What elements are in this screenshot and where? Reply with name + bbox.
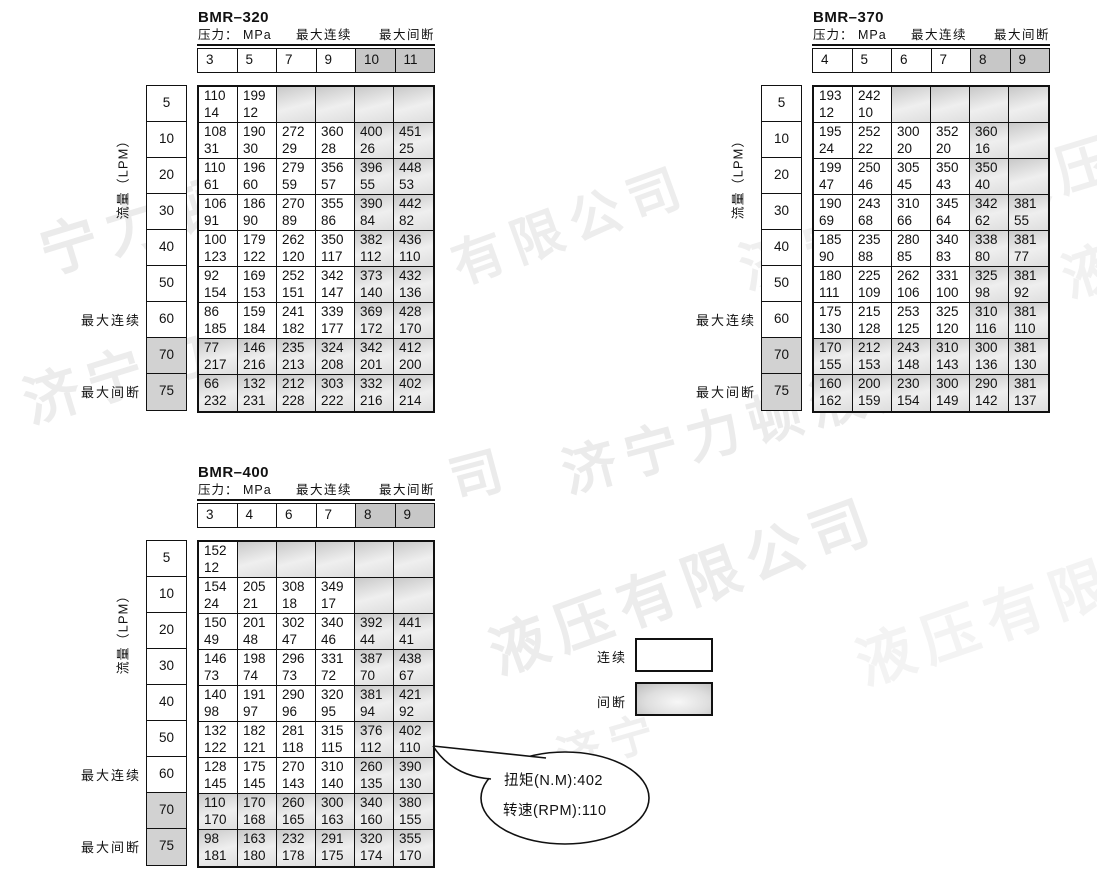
torque-speed-cell bbox=[394, 578, 433, 614]
torque-speed-grid: 1931224210195242522230020352203601619947… bbox=[812, 85, 1050, 413]
torque-speed-cell: 14673 bbox=[199, 650, 238, 686]
torque-speed-cell: 428170 bbox=[394, 303, 433, 339]
torque-speed-cell: 24368 bbox=[853, 195, 892, 231]
pressure-header-cell: 9 bbox=[1011, 49, 1050, 72]
torque-speed-cell: 19912 bbox=[238, 87, 277, 123]
legend-continuous-swatch bbox=[635, 638, 713, 672]
flow-header-cell: 10 bbox=[147, 122, 186, 158]
torque-speed-cell: 30247 bbox=[277, 614, 316, 650]
torque-speed-cell: 128145 bbox=[199, 758, 238, 794]
torque-speed-cell: 230154 bbox=[892, 375, 931, 411]
torque-speed-cell: 235213 bbox=[277, 339, 316, 375]
side-max-intermittent-label: 最大间断 bbox=[1, 382, 141, 401]
pressure-unit-label: 压力： MPa bbox=[198, 24, 272, 43]
torque-speed-cell bbox=[355, 578, 394, 614]
torque-speed-cell: 300136 bbox=[970, 339, 1009, 375]
torque-speed-cell: 100123 bbox=[199, 231, 238, 267]
torque-speed-cell: 11014 bbox=[199, 87, 238, 123]
flow-header-cell: 5 bbox=[762, 86, 801, 122]
torque-speed-cell: 320174 bbox=[355, 830, 394, 866]
max-continuous-label: 最大连续 bbox=[296, 479, 352, 498]
flow-header-cell: 50 bbox=[147, 266, 186, 302]
pressure-header-cell: 7 bbox=[932, 49, 972, 72]
torque-speed-cell: 402110 bbox=[394, 722, 433, 758]
torque-speed-cell: 179122 bbox=[238, 231, 277, 267]
pressure-header-cell: 4 bbox=[813, 49, 853, 72]
torque-speed-cell: 29673 bbox=[277, 650, 316, 686]
torque-speed-cell: 281118 bbox=[277, 722, 316, 758]
torque-speed-cell: 45125 bbox=[394, 123, 433, 159]
flow-header-cell: 75 bbox=[147, 374, 186, 410]
pressure-header-cell: 8 bbox=[971, 49, 1011, 72]
flow-header-cell: 40 bbox=[147, 685, 186, 721]
torque-speed-cell: 342201 bbox=[355, 339, 394, 375]
torque-speed-cell: 212228 bbox=[277, 375, 316, 411]
torque-speed-cell: 212153 bbox=[853, 339, 892, 375]
torque-speed-cell: 11061 bbox=[199, 159, 238, 195]
torque-speed-cell: 39655 bbox=[355, 159, 394, 195]
flow-header-cell: 40 bbox=[147, 230, 186, 266]
pressure-header-row: 压力： MPa 最大连续 最大间断 bbox=[197, 30, 435, 46]
flow-header-cell: 40 bbox=[762, 230, 801, 266]
torque-speed-cell: 43867 bbox=[394, 650, 433, 686]
torque-speed-cell: 39084 bbox=[355, 195, 394, 231]
torque-speed-cell: 331100 bbox=[931, 267, 970, 303]
torque-speed-cell: 260165 bbox=[277, 794, 316, 830]
torque-speed-cell: 42192 bbox=[394, 686, 433, 722]
torque-speed-cell: 14098 bbox=[199, 686, 238, 722]
torque-speed-cell bbox=[1009, 159, 1048, 195]
torque-speed-cell: 146216 bbox=[238, 339, 277, 375]
torque-speed-cell: 34564 bbox=[931, 195, 970, 231]
torque-speed-cell: 34262 bbox=[970, 195, 1009, 231]
torque-speed-cell: 38194 bbox=[355, 686, 394, 722]
side-max-intermittent-label: 最大间断 bbox=[616, 382, 756, 401]
callout-speed-text: 转速(RPM):110 bbox=[503, 799, 607, 820]
torque-speed-cell: 66232 bbox=[199, 375, 238, 411]
pressure-header-cell: 9 bbox=[396, 504, 435, 527]
torque-speed-cell: 175130 bbox=[814, 303, 853, 339]
torque-speed-cell: 44282 bbox=[394, 195, 433, 231]
torque-speed-cell: 160162 bbox=[814, 375, 853, 411]
torque-speed-cell: 225109 bbox=[853, 267, 892, 303]
torque-speed-cell: 24210 bbox=[853, 87, 892, 123]
torque-speed-cell bbox=[970, 87, 1009, 123]
torque-speed-cell: 30545 bbox=[892, 159, 931, 195]
torque-speed-cell: 253125 bbox=[892, 303, 931, 339]
pressure-unit-label: 压力： MPa bbox=[813, 24, 887, 43]
torque-speed-cell: 32095 bbox=[316, 686, 355, 722]
torque-speed-cell: 27229 bbox=[277, 123, 316, 159]
torque-speed-cell: 20521 bbox=[238, 578, 277, 614]
torque-speed-grid: 1521215424205213081834917150492014830247… bbox=[197, 540, 435, 868]
torque-speed-cell: 27089 bbox=[277, 195, 316, 231]
torque-speed-cell: 19197 bbox=[238, 686, 277, 722]
torque-speed-cell: 34046 bbox=[316, 614, 355, 650]
torque-speed-cell: 182121 bbox=[238, 722, 277, 758]
torque-speed-cell: 19524 bbox=[814, 123, 853, 159]
flow-header-cell: 50 bbox=[147, 721, 186, 757]
pressure-header-cell: 5 bbox=[853, 49, 893, 72]
torque-speed-cell: 33880 bbox=[970, 231, 1009, 267]
torque-speed-cell: 132122 bbox=[199, 722, 238, 758]
torque-speed-cell: 232178 bbox=[277, 830, 316, 866]
flow-row-headers: 51020304050607075 bbox=[761, 85, 802, 411]
side-max-continuous-label: 最大连续 bbox=[1, 765, 141, 784]
torque-speed-cell: 36016 bbox=[970, 123, 1009, 159]
watermark-text: 司 bbox=[440, 426, 519, 514]
torque-speed-cell: 92154 bbox=[199, 267, 238, 303]
torque-speed-cell: 31066 bbox=[892, 195, 931, 231]
flow-header-cell: 5 bbox=[147, 541, 186, 577]
torque-speed-cell: 19312 bbox=[814, 87, 853, 123]
torque-speed-cell: 38155 bbox=[1009, 195, 1048, 231]
torque-speed-cell: 40026 bbox=[355, 123, 394, 159]
torque-speed-cell: 412200 bbox=[394, 339, 433, 375]
torque-speed-cell: 200159 bbox=[853, 375, 892, 411]
torque-speed-cell: 86185 bbox=[199, 303, 238, 339]
torque-speed-cell bbox=[1009, 123, 1048, 159]
torque-speed-cell: 27959 bbox=[277, 159, 316, 195]
flow-header-cell: 30 bbox=[762, 194, 801, 230]
flow-header-cell: 70 bbox=[147, 338, 186, 374]
torque-speed-cell: 310116 bbox=[970, 303, 1009, 339]
torque-speed-cell: 315115 bbox=[316, 722, 355, 758]
pressure-unit-label: 压力： MPa bbox=[198, 479, 272, 498]
torque-speed-cell: 243148 bbox=[892, 339, 931, 375]
torque-speed-cell: 35220 bbox=[931, 123, 970, 159]
torque-speed-cell: 23588 bbox=[853, 231, 892, 267]
torque-speed-cell: 15049 bbox=[199, 614, 238, 650]
torque-speed-cell: 432136 bbox=[394, 267, 433, 303]
torque-speed-cell: 10691 bbox=[199, 195, 238, 231]
flow-header-cell: 60 bbox=[762, 302, 801, 338]
torque-speed-cell: 381110 bbox=[1009, 303, 1048, 339]
flow-row-headers: 51020304050607075 bbox=[146, 540, 187, 866]
torque-speed-cell: 34917 bbox=[316, 578, 355, 614]
torque-speed-cell: 35657 bbox=[316, 159, 355, 195]
pressure-header-cell: 7 bbox=[317, 504, 357, 527]
torque-speed-cell: 260135 bbox=[355, 758, 394, 794]
side-max-continuous-label: 最大连续 bbox=[1, 310, 141, 329]
max-intermittent-label: 最大间断 bbox=[994, 24, 1050, 43]
torque-speed-cell: 132231 bbox=[238, 375, 277, 411]
torque-speed-cell: 262106 bbox=[892, 267, 931, 303]
torque-speed-cell: 170168 bbox=[238, 794, 277, 830]
torque-speed-cell: 355170 bbox=[394, 830, 433, 866]
torque-speed-cell: 32598 bbox=[970, 267, 1009, 303]
torque-speed-cell: 300163 bbox=[316, 794, 355, 830]
pressure-header-cell: 4 bbox=[238, 504, 278, 527]
torque-speed-cell bbox=[316, 87, 355, 123]
torque-speed-cell: 241182 bbox=[277, 303, 316, 339]
torque-speed-cell bbox=[355, 87, 394, 123]
torque-speed-cell: 30818 bbox=[277, 578, 316, 614]
torque-speed-cell: 38192 bbox=[1009, 267, 1048, 303]
torque-speed-cell: 19947 bbox=[814, 159, 853, 195]
flow-header-cell: 5 bbox=[147, 86, 186, 122]
shading-legend: 连续 间断 bbox=[597, 637, 717, 717]
torque-speed-cell: 310140 bbox=[316, 758, 355, 794]
pressure-header-cell: 3 bbox=[198, 49, 238, 72]
torque-speed-cell bbox=[277, 87, 316, 123]
max-intermittent-label: 最大间断 bbox=[379, 479, 435, 498]
flow-row-headers: 51020304050607075 bbox=[146, 85, 187, 411]
torque-speed-cell: 35043 bbox=[931, 159, 970, 195]
flow-header-cell: 10 bbox=[762, 122, 801, 158]
catalog-page: { "legend": { "continuous_label": "连续", … bbox=[0, 0, 1097, 878]
torque-speed-cell: 180111 bbox=[814, 267, 853, 303]
flow-header-cell: 20 bbox=[147, 613, 186, 649]
torque-speed-cell: 15424 bbox=[199, 578, 238, 614]
pressure-header-cell: 9 bbox=[317, 49, 357, 72]
torque-speed-cell bbox=[277, 542, 316, 578]
torque-speed-cell: 19069 bbox=[814, 195, 853, 231]
torque-speed-cell: 39244 bbox=[355, 614, 394, 650]
watermark-text: 液 bbox=[1050, 218, 1097, 313]
torque-speed-cell: 110170 bbox=[199, 794, 238, 830]
pressure-header-cell: 7 bbox=[277, 49, 317, 72]
torque-speed-cell: 340160 bbox=[355, 794, 394, 830]
torque-speed-cell: 19874 bbox=[238, 650, 277, 686]
torque-speed-cell: 332216 bbox=[355, 375, 394, 411]
torque-speed-cell: 29096 bbox=[277, 686, 316, 722]
pressure-header-cell: 10 bbox=[356, 49, 396, 72]
torque-speed-cell: 38177 bbox=[1009, 231, 1048, 267]
pressure-header-cell: 3 bbox=[198, 504, 238, 527]
torque-speed-cell: 310143 bbox=[931, 339, 970, 375]
torque-speed-cell: 169153 bbox=[238, 267, 277, 303]
torque-speed-cell: 18590 bbox=[814, 231, 853, 267]
torque-speed-cell: 163180 bbox=[238, 830, 277, 866]
torque-speed-cell: 382112 bbox=[355, 231, 394, 267]
torque-speed-cell: 34083 bbox=[931, 231, 970, 267]
flow-header-cell: 60 bbox=[147, 302, 186, 338]
flow-header-cell: 30 bbox=[147, 649, 186, 685]
torque-speed-cell bbox=[355, 542, 394, 578]
torque-speed-cell: 33172 bbox=[316, 650, 355, 686]
torque-speed-cell: 380155 bbox=[394, 794, 433, 830]
flow-axis-label: 流量（LPM） bbox=[728, 111, 747, 243]
torque-speed-cell: 290142 bbox=[970, 375, 1009, 411]
torque-speed-cell: 20148 bbox=[238, 614, 277, 650]
max-continuous-label: 最大连续 bbox=[296, 24, 352, 43]
torque-speed-cell: 262120 bbox=[277, 231, 316, 267]
torque-speed-cell: 28085 bbox=[892, 231, 931, 267]
torque-speed-cell: 35586 bbox=[316, 195, 355, 231]
torque-speed-cell: 98181 bbox=[199, 830, 238, 866]
torque-speed-cell: 436110 bbox=[394, 231, 433, 267]
flow-header-cell: 75 bbox=[147, 829, 186, 865]
torque-speed-cell: 402214 bbox=[394, 375, 433, 411]
torque-speed-cell: 325120 bbox=[931, 303, 970, 339]
flow-header-cell: 70 bbox=[147, 793, 186, 829]
legend-intermittent-label: 间断 bbox=[597, 692, 627, 711]
torque-speed-cell: 381137 bbox=[1009, 375, 1048, 411]
pressure-header-cell: 5 bbox=[238, 49, 278, 72]
watermark-text: 有限公司 bbox=[440, 143, 699, 298]
flow-axis-label: 流量（LPM） bbox=[113, 566, 132, 698]
flow-header-cell: 20 bbox=[147, 158, 186, 194]
torque-speed-cell: 30020 bbox=[892, 123, 931, 159]
torque-speed-cell: 291175 bbox=[316, 830, 355, 866]
torque-speed-cell bbox=[238, 542, 277, 578]
torque-speed-cell bbox=[931, 87, 970, 123]
torque-speed-cell: 376112 bbox=[355, 722, 394, 758]
torque-speed-cell: 44853 bbox=[394, 159, 433, 195]
pressure-column-headers: 456789 bbox=[812, 48, 1050, 73]
flow-header-cell: 30 bbox=[147, 194, 186, 230]
side-max-continuous-label: 最大连续 bbox=[616, 310, 756, 329]
torque-speed-cell: 215128 bbox=[853, 303, 892, 339]
torque-speed-cell: 303222 bbox=[316, 375, 355, 411]
flow-header-cell: 75 bbox=[762, 374, 801, 410]
torque-speed-cell: 300149 bbox=[931, 375, 970, 411]
torque-speed-cell: 339177 bbox=[316, 303, 355, 339]
torque-speed-cell: 350117 bbox=[316, 231, 355, 267]
torque-speed-cell: 25046 bbox=[853, 159, 892, 195]
watermark-text: 液压有限 bbox=[843, 533, 1097, 701]
torque-speed-cell bbox=[316, 542, 355, 578]
flow-header-cell: 60 bbox=[147, 757, 186, 793]
torque-speed-cell bbox=[394, 87, 433, 123]
flow-header-cell: 70 bbox=[762, 338, 801, 374]
torque-speed-cell: 390130 bbox=[394, 758, 433, 794]
flow-header-cell: 50 bbox=[762, 266, 801, 302]
torque-speed-cell: 175145 bbox=[238, 758, 277, 794]
torque-speed-cell bbox=[1009, 87, 1048, 123]
pressure-column-headers: 346789 bbox=[197, 503, 435, 528]
max-intermittent-label: 最大间断 bbox=[379, 24, 435, 43]
torque-speed-cell: 252151 bbox=[277, 267, 316, 303]
callout-torque-text: 扭矩(N.M):402 bbox=[504, 769, 603, 790]
torque-speed-cell: 381130 bbox=[1009, 339, 1048, 375]
torque-speed-cell: 25222 bbox=[853, 123, 892, 159]
pressure-column-headers: 35791011 bbox=[197, 48, 435, 73]
torque-speed-cell: 170155 bbox=[814, 339, 853, 375]
torque-speed-cell: 36028 bbox=[316, 123, 355, 159]
max-continuous-label: 最大连续 bbox=[911, 24, 967, 43]
flow-axis-label: 流量（LPM） bbox=[113, 111, 132, 243]
torque-speed-cell: 10831 bbox=[199, 123, 238, 159]
torque-speed-grid: 1101419912108311903027229360284002645125… bbox=[197, 85, 435, 413]
side-max-intermittent-label: 最大间断 bbox=[1, 837, 141, 856]
torque-speed-cell bbox=[394, 542, 433, 578]
pressure-header-cell: 11 bbox=[396, 49, 435, 72]
torque-speed-cell: 44141 bbox=[394, 614, 433, 650]
torque-speed-cell: 77217 bbox=[199, 339, 238, 375]
torque-speed-cell bbox=[892, 87, 931, 123]
pressure-header-row: 压力： MPa 最大连续 最大间断 bbox=[197, 485, 435, 501]
torque-speed-cell: 15212 bbox=[199, 542, 238, 578]
flow-header-cell: 10 bbox=[147, 577, 186, 613]
flow-header-cell: 20 bbox=[762, 158, 801, 194]
torque-speed-cell: 324208 bbox=[316, 339, 355, 375]
torque-speed-cell: 18690 bbox=[238, 195, 277, 231]
legend-continuous-label: 连续 bbox=[597, 647, 627, 666]
pressure-header-row: 压力： MPa 最大连续 最大间断 bbox=[812, 30, 1050, 46]
pressure-header-cell: 6 bbox=[892, 49, 932, 72]
pressure-header-cell: 6 bbox=[277, 504, 317, 527]
torque-speed-cell: 35040 bbox=[970, 159, 1009, 195]
torque-speed-cell: 19030 bbox=[238, 123, 277, 159]
torque-speed-cell: 159184 bbox=[238, 303, 277, 339]
torque-speed-cell: 38770 bbox=[355, 650, 394, 686]
legend-intermittent-swatch bbox=[635, 682, 713, 716]
torque-speed-cell: 270143 bbox=[277, 758, 316, 794]
torque-speed-cell: 373140 bbox=[355, 267, 394, 303]
torque-speed-cell: 369172 bbox=[355, 303, 394, 339]
torque-speed-cell: 342147 bbox=[316, 267, 355, 303]
pressure-header-cell: 8 bbox=[356, 504, 396, 527]
torque-speed-cell: 19660 bbox=[238, 159, 277, 195]
